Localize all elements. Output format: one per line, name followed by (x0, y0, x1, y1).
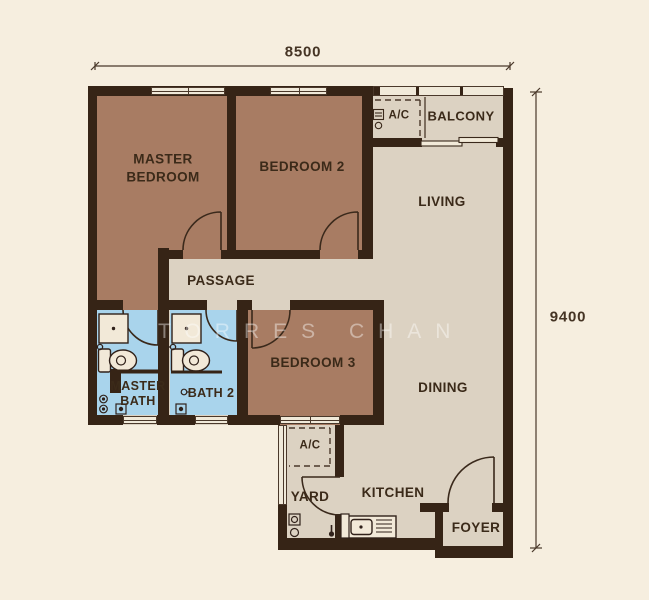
wall-passage-top-a (168, 250, 183, 259)
wall-bottom-a (88, 415, 123, 425)
wall-balcony-bottom-a (362, 138, 422, 147)
wall-master-bed2-divider (227, 88, 236, 259)
bedroom-2-label: BEDROOM 2 (259, 158, 344, 176)
wall-yard-kitchen-stub (335, 514, 341, 540)
wall-bottom-d (340, 415, 384, 425)
bedroom-2-floor (236, 95, 362, 259)
master-bath-label: MASTER BATH (110, 379, 165, 409)
passage-label: PASSAGE (187, 272, 255, 290)
wall-right (503, 88, 513, 558)
wall-passage-top-c (358, 250, 373, 259)
wall-bath-top-a (97, 300, 123, 310)
wall-bed3-right (373, 300, 384, 425)
living-label: LIVING (418, 193, 465, 211)
watermark: TORRES CHAN (158, 320, 464, 344)
bath-2-window (195, 416, 228, 424)
wall-kitchen-bottom (278, 538, 443, 550)
wall-bed2-right (362, 88, 373, 259)
dining-label: DINING (418, 379, 468, 397)
yard-window-wall (278, 425, 287, 505)
ac-lower-label: A/C (299, 439, 320, 454)
wall-bath-top-b (158, 300, 207, 310)
background-mask (0, 425, 278, 600)
yard-label: YARD (291, 488, 330, 506)
wall-bottom-b (157, 415, 195, 425)
wall-left (88, 86, 97, 425)
railing-post (460, 87, 463, 95)
master-bedroom-label: MASTER BEDROOM (126, 150, 199, 185)
balcony-railing (373, 86, 504, 96)
wall-entry-a (420, 503, 449, 512)
master-bath-window (123, 416, 157, 424)
wall-bottom-c (228, 415, 280, 425)
foyer-label: FOYER (452, 519, 501, 537)
floor-plan: TORRES CHAN MASTER BEDROOM BEDROOM 2 PAS… (0, 0, 649, 600)
wall-bed3-top (290, 300, 383, 310)
railing-post (416, 87, 419, 95)
wall-foyer-left (435, 512, 443, 550)
balcony-label: BALCONY (427, 109, 494, 126)
kitchen-label: KITCHEN (362, 484, 425, 502)
height-dimension-label: 9400 (550, 309, 587, 326)
railing-post (374, 87, 380, 95)
bath-2-label: BATH 2 (188, 385, 235, 401)
bedroom-2-window (270, 87, 327, 95)
wall-foyer-bottom (435, 546, 513, 558)
wall-bath2-bed3-divider (237, 300, 248, 425)
wall-entry-b (492, 503, 503, 512)
wall-yard-kitchen-upper (335, 425, 344, 477)
master-bedroom-window (151, 87, 225, 95)
bedroom-3-window (280, 416, 340, 424)
wall-passage-top-b (221, 250, 320, 259)
bedroom-3-label: BEDROOM 3 (270, 354, 355, 372)
ac-upper-label: A/C (388, 109, 409, 124)
width-dimension-label: 8500 (285, 44, 322, 61)
